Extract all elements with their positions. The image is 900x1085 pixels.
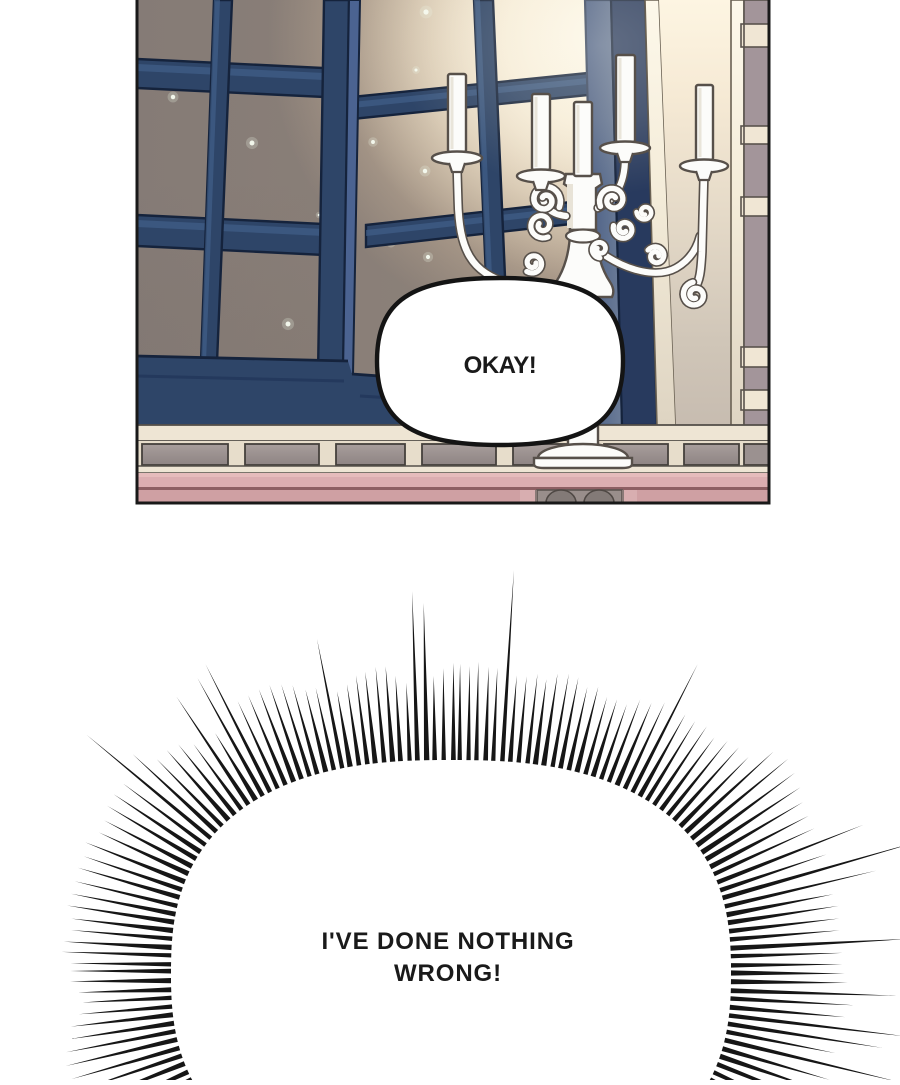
svg-text:I'VE DONE NOTHING: I'VE DONE NOTHING (321, 928, 574, 955)
svg-text:OKAY!: OKAY! (464, 352, 537, 379)
svg-text:WRONG!: WRONG! (394, 960, 502, 987)
